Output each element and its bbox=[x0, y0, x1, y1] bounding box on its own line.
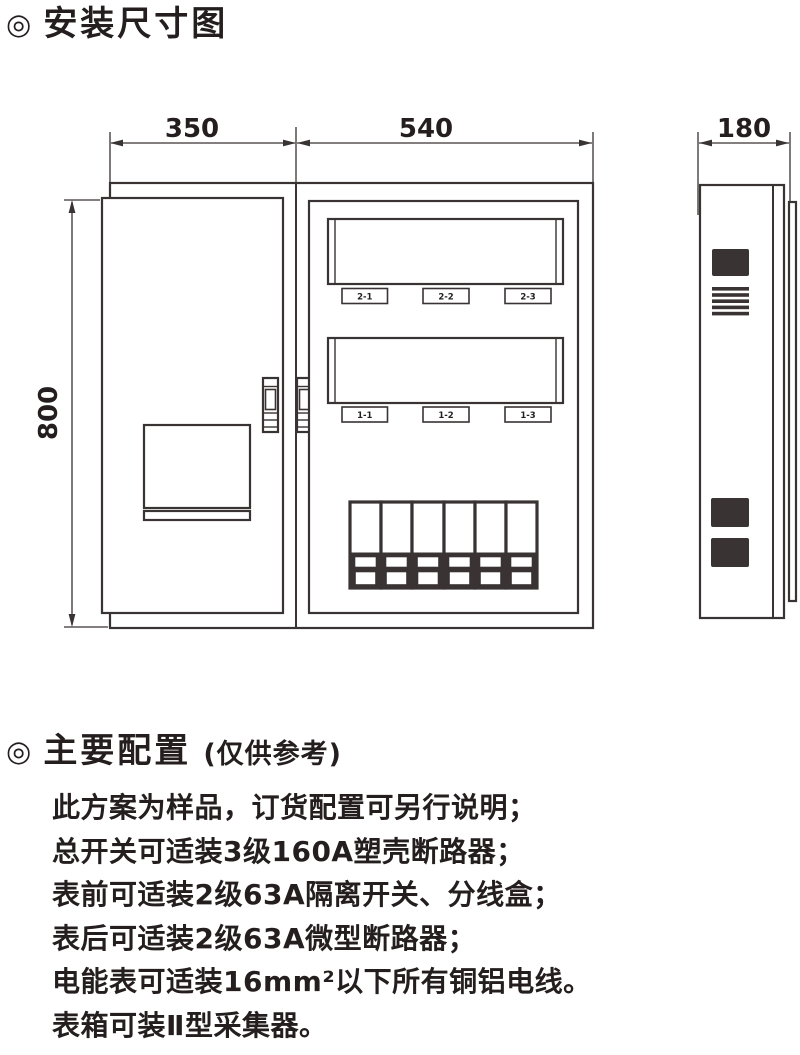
dim-label-350: 350 bbox=[165, 114, 219, 144]
config-notes: 此方案为样品，订货配置可另行说明； 总开关可适装3级160A塑壳断路器； 表前可… bbox=[52, 786, 592, 1047]
dimension-height: 800 bbox=[34, 200, 108, 627]
meter-label: 2-1 bbox=[357, 293, 372, 303]
dim-label-800: 800 bbox=[34, 386, 64, 440]
meter-label: 2-3 bbox=[520, 293, 535, 303]
dimension-front-right-width: 540 bbox=[297, 114, 593, 193]
meter-label: 2-2 bbox=[438, 293, 453, 303]
meter-window-top bbox=[328, 219, 563, 284]
config-section-subtitle: (仅供参考) bbox=[203, 731, 342, 775]
breaker-row-band bbox=[352, 553, 536, 587]
breaker-label-window bbox=[417, 557, 439, 568]
meter-label: 1-3 bbox=[520, 411, 535, 421]
breaker-toggle-window bbox=[511, 572, 532, 586]
config-note-line: 此方案为样品，订货配置可另行说明； bbox=[52, 786, 592, 830]
side-mount-flange bbox=[789, 202, 796, 601]
config-note-line: 电能表可适装16mm²以下所有铜铝电线。 bbox=[52, 960, 592, 1004]
meter-label: 1-2 bbox=[438, 411, 453, 421]
breaker-label-window bbox=[355, 557, 377, 568]
side-view bbox=[700, 185, 796, 618]
breaker-toggle-window bbox=[480, 572, 501, 586]
side-vent-block bbox=[711, 538, 749, 567]
config-note-line: 总开关可适装3级160A塑壳断路器； bbox=[52, 830, 592, 874]
config-note-line: 表箱可装Ⅱ型采集器。 bbox=[52, 1004, 592, 1048]
breaker-label-window bbox=[511, 557, 533, 568]
config-note-line: 表后可适装2级63A微型断路器； bbox=[52, 917, 592, 961]
meter-window-bottom-labels: 1-1 1-2 1-3 bbox=[342, 407, 551, 422]
dim-label-540: 540 bbox=[399, 114, 453, 144]
breaker-toggle-window bbox=[355, 572, 376, 586]
front-view: 2-1 2-2 2-3 1-1 1-2 1-3 bbox=[102, 183, 593, 628]
breaker-label-window bbox=[386, 557, 408, 568]
installation-dimension-drawing: 350 540 180 800 bbox=[0, 0, 800, 660]
breaker-toggle-window bbox=[386, 572, 407, 586]
left-door bbox=[102, 198, 283, 613]
config-note-line: 表前可适装2级63A隔离开关、分线盒； bbox=[52, 873, 592, 917]
dim-label-180: 180 bbox=[717, 114, 771, 144]
breaker-row bbox=[350, 502, 537, 588]
side-vent-block bbox=[712, 249, 749, 276]
side-vent-block bbox=[711, 498, 749, 527]
door-latch-left bbox=[263, 378, 278, 432]
breaker-toggle-window bbox=[449, 572, 470, 586]
left-door-window-sill bbox=[144, 511, 250, 520]
breaker-label-window bbox=[480, 557, 502, 568]
meter-window-top-labels: 2-1 2-2 2-3 bbox=[342, 289, 551, 304]
config-section-title: 主要配置 bbox=[43, 731, 191, 771]
meter-label: 1-1 bbox=[357, 411, 372, 421]
config-section-header: ◎ 主要配置 (仅供参考) bbox=[6, 731, 342, 775]
breaker-toggle-window bbox=[418, 572, 439, 586]
left-door-window bbox=[144, 425, 250, 508]
meter-window-bottom bbox=[328, 338, 563, 403]
breaker-label-window bbox=[449, 557, 471, 568]
bullseye-icon: ◎ bbox=[6, 731, 31, 771]
